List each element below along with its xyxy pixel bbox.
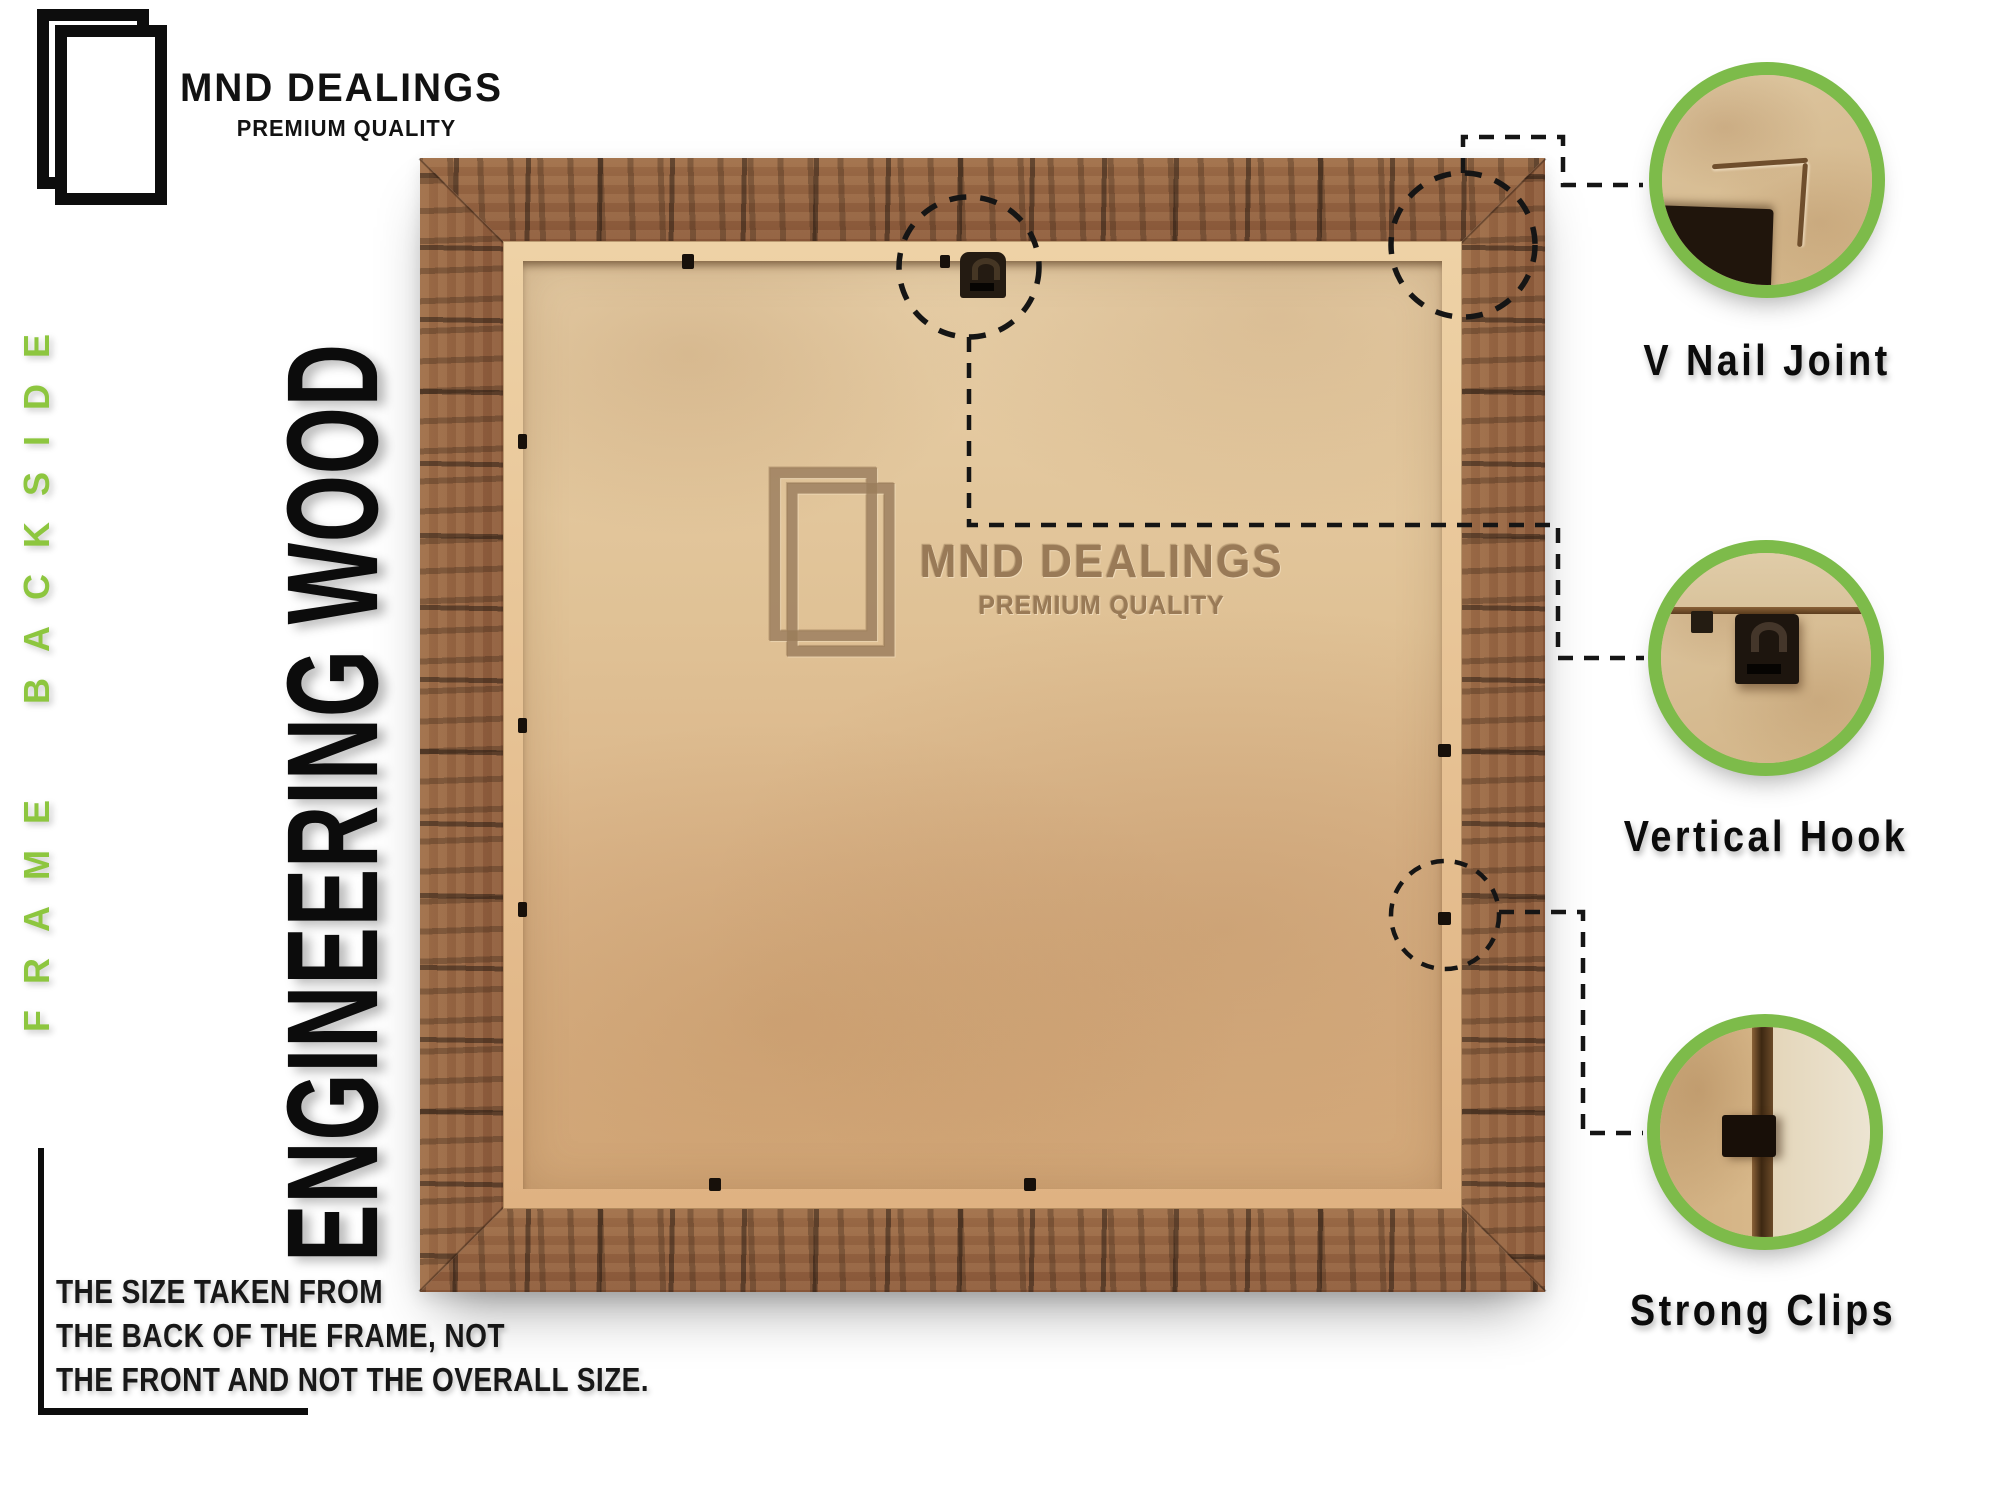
mdf-edge-strip (1661, 553, 1871, 609)
callout-label-v-nail-joint: V Nail Joint (1586, 336, 1947, 386)
note-rule-vertical (38, 1148, 44, 1410)
size-note-line: THE BACK OF THE FRAME, NOT (56, 1314, 651, 1358)
hanging-hook (960, 252, 1006, 298)
engineering-wood-label: ENGINEERING WOOD (268, 343, 398, 1262)
watermark-name: MND DEALINGS (920, 534, 1284, 588)
brand-tagline: PREMIUM QUALITY (237, 115, 456, 142)
staple (709, 1178, 721, 1191)
vertical-hook-hardware (1735, 614, 1799, 684)
mdf-back-panel (523, 261, 1442, 1189)
detail-circle-vertical-hook (1648, 540, 1884, 776)
callout-label-strong-clips: Strong Clips (1582, 1286, 1943, 1336)
staple (1691, 611, 1713, 633)
staple (518, 434, 527, 449)
watermark-text: MND DEALINGS PREMIUM QUALITY (912, 534, 1291, 621)
frame-wood-right (1462, 158, 1545, 1292)
size-note-line: THE FRONT AND NOT THE OVERALL SIZE. (56, 1358, 651, 1402)
brand-name: MND DEALINGS (180, 66, 503, 111)
staple (682, 254, 694, 269)
frame-wood-bottom (420, 1209, 1545, 1292)
detail-circle-v-nail-joint (1649, 62, 1885, 298)
watermark-tagline: PREMIUM QUALITY (979, 590, 1225, 621)
staple (940, 255, 950, 268)
frame-edge (1773, 1027, 1870, 1237)
watermark-logo-icon (768, 462, 896, 662)
frame-wood-left (420, 158, 503, 1292)
callout-label-vertical-hook: Vertical Hook (1585, 812, 1946, 862)
brand-logo-icon (36, 8, 168, 206)
frame-backside-label: FRAME BACKSIDE (16, 308, 58, 1032)
frame-backside-photo: MND DEALINGS PREMIUM QUALITY (420, 158, 1545, 1292)
strong-clip-hardware (1722, 1115, 1776, 1157)
staple (518, 902, 527, 917)
staple (518, 718, 527, 733)
frame-wood-top (420, 158, 1545, 241)
retaining-clip (1438, 744, 1451, 757)
retaining-clip (1438, 912, 1451, 925)
watermark: MND DEALINGS PREMIUM QUALITY (768, 462, 1291, 662)
brand-block: MND DEALINGS PREMIUM QUALITY (180, 66, 513, 142)
frame-corner-shadow (1649, 205, 1774, 298)
note-rule-horizontal (38, 1408, 308, 1415)
detail-circle-strong-clips (1647, 1014, 1883, 1250)
staple (1024, 1178, 1036, 1191)
